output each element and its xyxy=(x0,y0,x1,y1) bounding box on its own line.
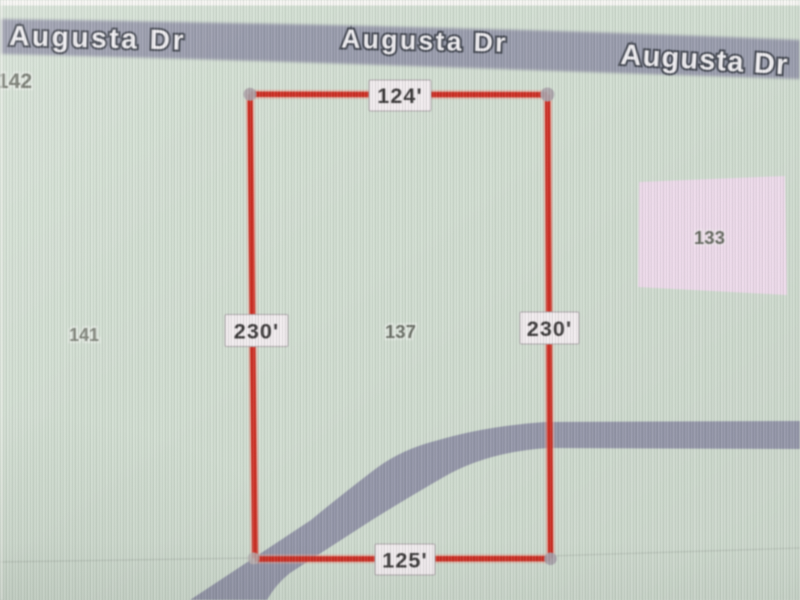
svg-text:124': 124' xyxy=(377,84,422,108)
svg-text:137: 137 xyxy=(385,321,416,342)
svg-text:125': 125' xyxy=(382,549,427,573)
svg-text:142: 142 xyxy=(0,70,32,93)
svg-text:Augusta Dr: Augusta Dr xyxy=(341,24,509,58)
svg-text:141: 141 xyxy=(69,325,99,345)
svg-text:230': 230' xyxy=(234,320,279,344)
svg-text:133: 133 xyxy=(694,227,725,248)
svg-text:230': 230' xyxy=(527,317,572,341)
svg-text:Augusta Dr: Augusta Dr xyxy=(9,20,187,56)
